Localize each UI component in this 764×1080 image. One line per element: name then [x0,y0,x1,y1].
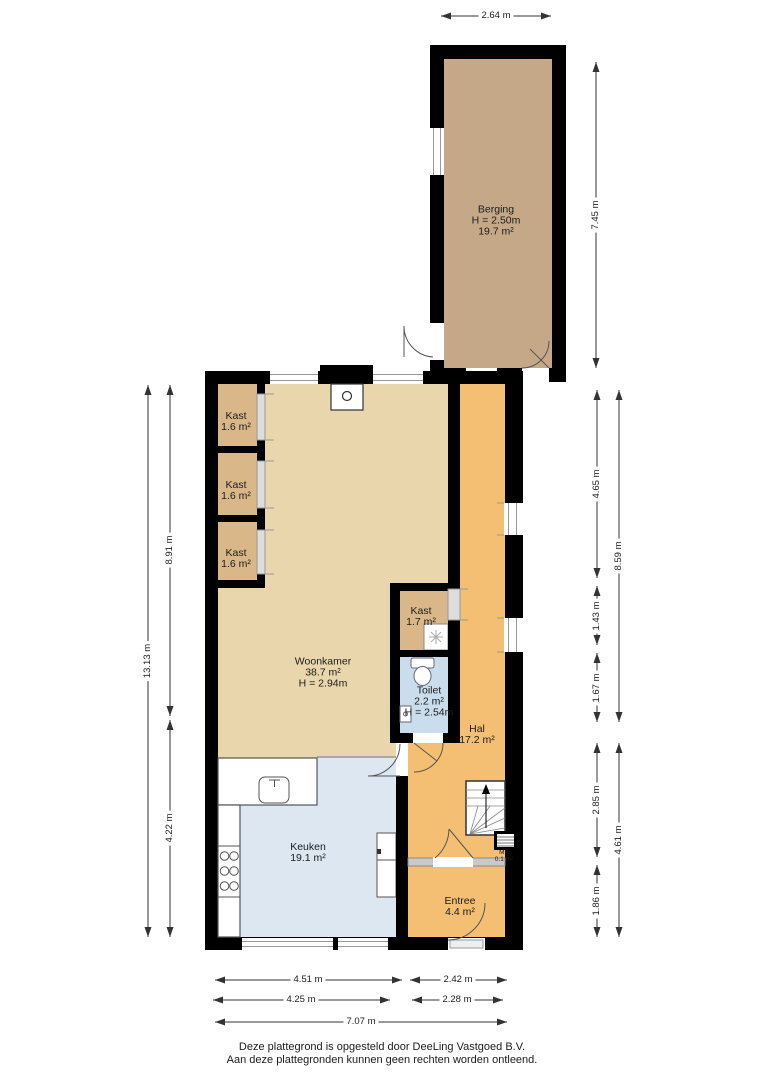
room-label-kast-1: Kast 1.6 m² [221,411,251,433]
room-area: 1.6 m² [221,559,251,570]
room-label-hal: Hal 17.2 m² [459,724,495,746]
room-area: 0.1 m² [495,856,513,863]
stairs [466,781,505,835]
room-label-berging: Berging H = 2.50m 19.7 m² [472,205,521,238]
room-area: 4.4 m² [445,907,476,918]
room-label-woonkamer: Woonkamer 38.7 m² H = 2.94m [295,657,351,690]
facade-window-bottom [242,938,388,950]
dim-label-bottom-left-1: 4.51 m [290,975,325,985]
room-label-toilet: Toilet 2.2 m² H = 2.54m [405,686,454,719]
dim-label-right-seg-2: 1.43 m [592,598,602,633]
floorplan-drawing [0,0,764,1080]
footer-line-1: Deze plattegrond is opgesteld door DeeLi… [0,1041,764,1054]
room-area: 19.1 m² [290,853,326,864]
kitchen-sink-icon [259,777,289,803]
room-area: 1.7 m² [406,617,436,628]
floorplan-page: Berging H = 2.50m 19.7 m² Kast 1.6 m² Ka… [0,0,764,1080]
room-area: 1.6 m² [221,491,251,502]
kitchen-appliances [377,833,396,897]
room-area: 19.7 m² [472,227,521,238]
room-label-kast-3: Kast 1.6 m² [221,548,251,570]
room-label-mk: MK 0.1 m² [495,849,513,863]
dim-label-right-seg-1: 4.65 m [592,466,602,501]
dim-label-left-total: 13.13 m [143,641,153,681]
room-label-kast-2: Kast 1.6 m² [221,480,251,502]
dim-label-right-seg-5: 1.86 m [592,883,602,918]
dim-label-bottom-right-1: 2.42 m [440,975,475,985]
room-height: H = 2.94m [295,679,351,690]
dim-label-berging-height: 7.45 m [591,197,601,232]
dim-label-bottom-left-2: 4.25 m [283,995,318,1005]
footer-disclaimer: Deze plattegrond is opgesteld door DeeLi… [0,1041,764,1066]
dim-label-bottom-total: 7.07 m [343,1017,378,1027]
woonkamer-hal-wall [448,384,460,583]
dim-label-top-width: 2.64 m [478,11,513,21]
dim-label-left-seg-2: 4.22 m [165,810,175,845]
dim-label-right-total-2: 4.61 m [614,822,624,857]
room-area: 17.2 m² [459,735,495,746]
footer-line-2: Aan deze plattegronden kunnen geen recht… [0,1054,764,1067]
room-name: MK [495,849,513,856]
dim-label-bottom-right-2: 2.28 m [439,995,474,1005]
facade-window-top-2 [373,371,423,384]
dim-label-left-seg-1: 8.91 m [165,532,175,567]
room-height: H = 2.54m [405,708,454,719]
facade-window-top-1 [270,371,318,384]
dim-label-right-seg-4: 2.85 m [592,782,602,817]
berging-side-door [404,323,444,360]
meter-cabinet [494,831,517,850]
room-area: 1.6 m² [221,422,251,433]
berging-window [429,128,444,175]
room-label-keuken: Keuken 19.1 m² [290,842,326,864]
room-label-kast-4: Kast 1.7 m² [406,606,436,628]
dim-label-right-seg-3: 1.67 m [592,670,602,705]
room-label-entree: Entree 4.4 m² [445,896,476,918]
dim-label-right-total-1: 8.59 m [614,538,624,573]
